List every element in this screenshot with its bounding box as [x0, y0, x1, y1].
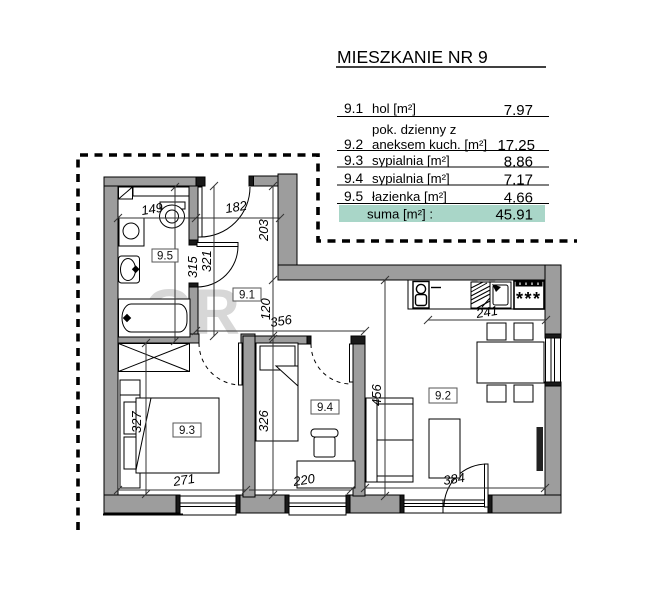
svg-text:sypialnia [m²]: sypialnia [m²] — [372, 153, 450, 168]
svg-text:9.1: 9.1 — [239, 290, 255, 302]
svg-text:aneksem kuch. [m²]: aneksem kuch. [m²] — [372, 137, 487, 152]
svg-text:9.3: 9.3 — [179, 425, 195, 437]
svg-text:321: 321 — [199, 250, 214, 272]
svg-text:suma [m²] :: suma [m²] : — [367, 207, 433, 222]
svg-text:315: 315 — [185, 256, 200, 278]
svg-text:8.86: 8.86 — [504, 154, 533, 171]
svg-text:326: 326 — [256, 410, 271, 432]
svg-text:***: *** — [516, 289, 542, 309]
svg-text:9.3: 9.3 — [344, 153, 364, 168]
svg-text:9.1: 9.1 — [344, 101, 363, 116]
svg-text:203: 203 — [256, 219, 271, 242]
svg-text:9.5: 9.5 — [157, 251, 173, 263]
svg-text:9.4: 9.4 — [344, 171, 364, 186]
svg-text:MIESZKANIE NR: MIESZKANIE NR — [337, 47, 473, 67]
svg-text:456: 456 — [369, 384, 384, 406]
svg-text:327: 327 — [129, 411, 144, 433]
svg-text:17.25: 17.25 — [497, 137, 535, 154]
svg-text:9.5: 9.5 — [344, 189, 364, 204]
svg-text:hol [m²]: hol [m²] — [372, 101, 416, 116]
svg-text:sypialnia [m²]: sypialnia [m²] — [372, 171, 450, 186]
svg-text:9: 9 — [478, 47, 488, 67]
svg-text:9.2: 9.2 — [435, 391, 451, 403]
svg-text:7.17: 7.17 — [504, 172, 533, 189]
svg-text:9.4: 9.4 — [317, 402, 334, 414]
svg-text:pok. dzienny z: pok. dzienny z — [372, 122, 456, 137]
svg-text:łazienka [m²]: łazienka [m²] — [372, 189, 447, 204]
svg-text:45.91: 45.91 — [495, 207, 533, 224]
svg-text:9.2: 9.2 — [344, 137, 363, 152]
